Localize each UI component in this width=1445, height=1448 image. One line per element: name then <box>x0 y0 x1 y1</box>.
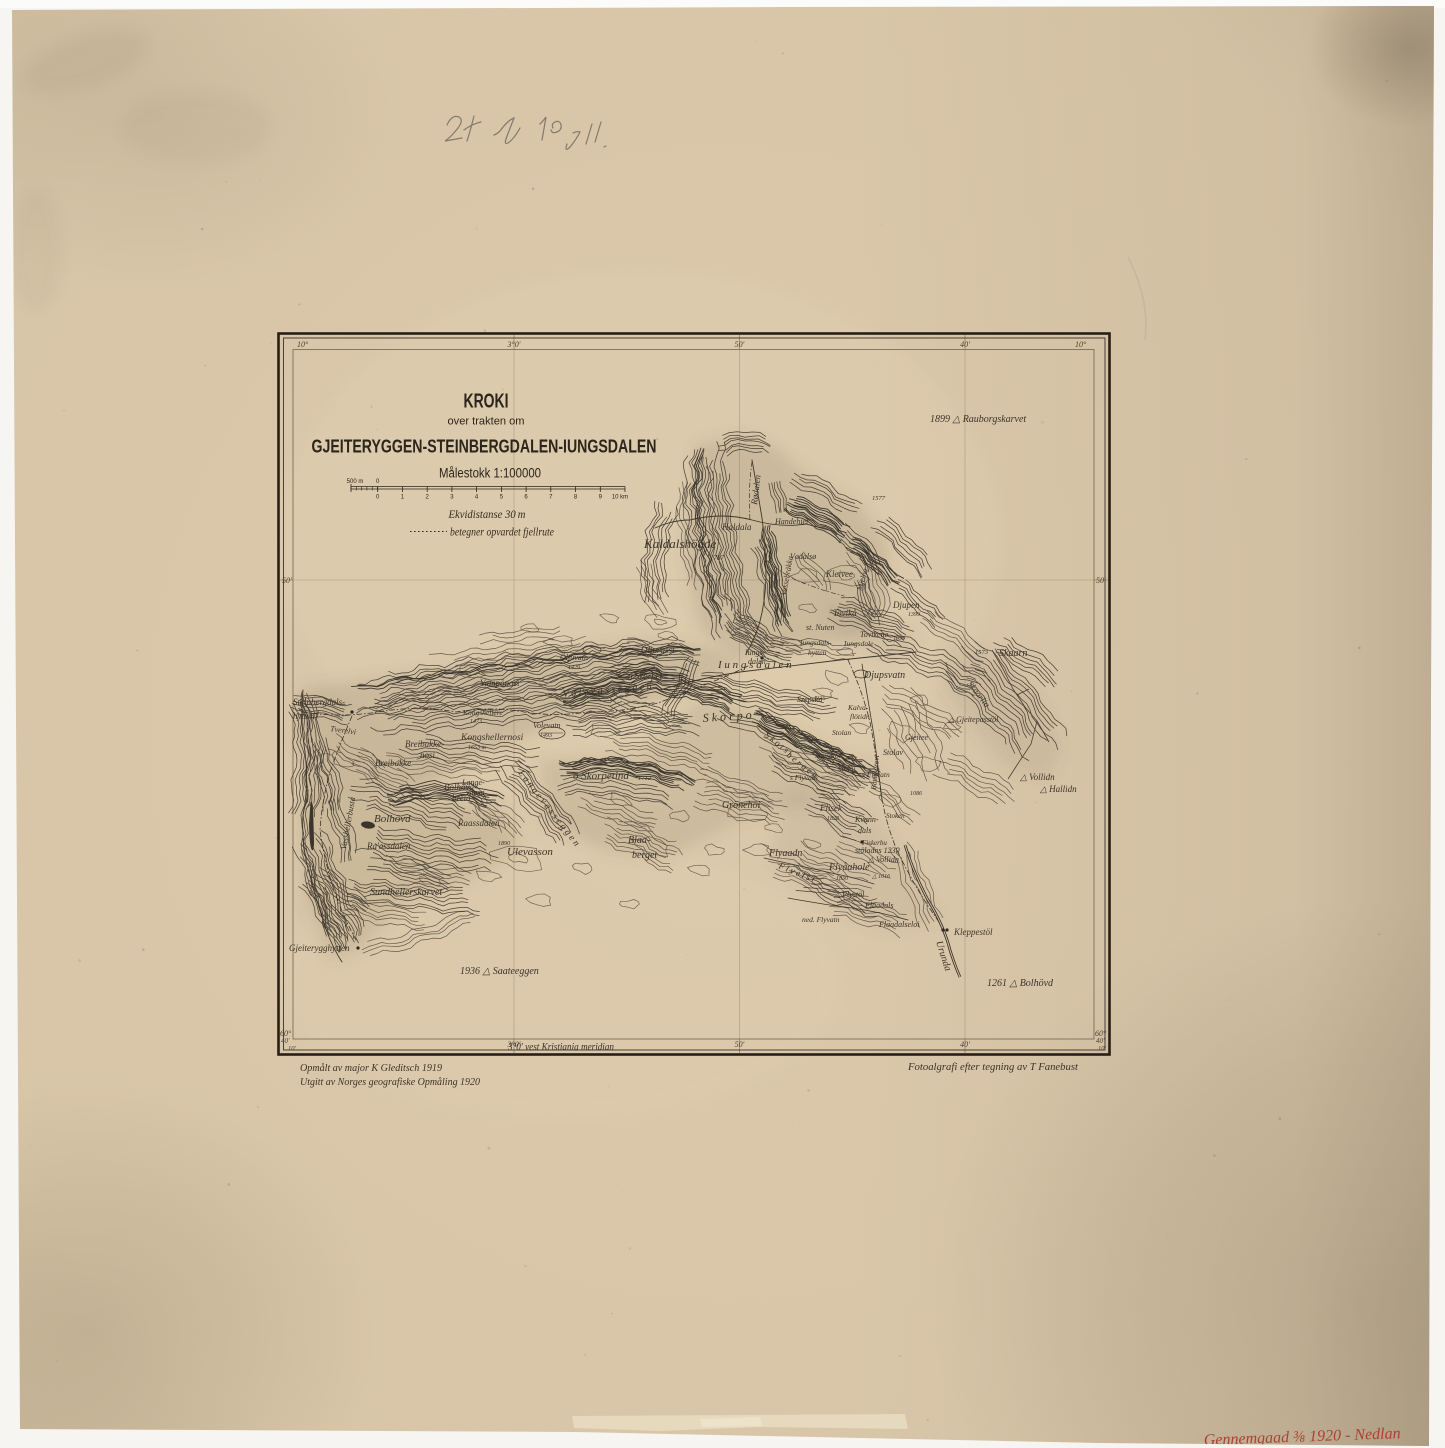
svg-text:Kongshellere: Kongshellere <box>462 708 503 717</box>
svg-text:40′: 40′ <box>960 340 970 349</box>
svg-text:Ulevasson: Ulevasson <box>507 846 553 858</box>
svg-text:10°: 10° <box>297 340 309 349</box>
svg-text:Öljurassi: Öljurassi <box>641 645 675 655</box>
svg-text:1429: 1429 <box>568 664 580 671</box>
svg-text:Skaarn: Skaarn <box>999 648 1027 659</box>
svg-text:10′: 10′ <box>1098 1045 1107 1052</box>
svg-text:50′: 50′ <box>735 340 745 349</box>
svg-text:Djupen: Djupen <box>892 600 920 610</box>
svg-text:1830: 1830 <box>836 876 848 882</box>
svg-text:△ Flystöl: △ Flystöl <box>833 890 865 899</box>
svg-text:Utgitt av Norges geografiske O: Utgitt av Norges geografiske Opmåling 19… <box>300 1076 480 1088</box>
svg-text:hytten: hytten <box>293 711 315 721</box>
svg-text:10′: 10′ <box>288 1045 297 1052</box>
svg-text:Fiskerbu: Fiskerbu <box>861 839 887 847</box>
svg-text:50′: 50′ <box>1096 576 1106 585</box>
svg-text:Szepska: Szepska <box>797 695 822 704</box>
svg-text:GJEITERYGGEN-STEINBERGDALEN-IU: GJEITERYGGEN-STEINBERGDALEN-IUNGSDALEN <box>312 436 657 457</box>
svg-text:Opmålt av major K Gleditsch 19: Opmålt av major K Gleditsch 1919 <box>300 1062 442 1074</box>
svg-text:Öljuvatn: Öljuvatn <box>560 653 588 662</box>
svg-text:Bolhövd: Bolhövd <box>374 813 411 825</box>
svg-text:Flaadalseloi: Flaadalseloi <box>878 920 919 929</box>
svg-text:40′: 40′ <box>960 1040 970 1049</box>
svg-text:Bolhövd-: Bolhövd- <box>444 782 477 792</box>
svg-text:3°0′: 3°0′ <box>507 340 521 349</box>
svg-text:Iungsdals-: Iungsdals- <box>799 638 832 647</box>
svg-text:Kleivee: Kleivee <box>825 569 853 579</box>
svg-text:Djupsvatn: Djupsvatn <box>863 670 905 681</box>
svg-text:Flisek: Flisek <box>819 803 843 813</box>
svg-text:o Skorpetind: o Skorpetind <box>573 770 629 782</box>
svg-text:1899 △ Rauborgskarvet: 1899 △ Rauborgskarvet <box>930 414 1026 425</box>
svg-text:Fotoalgrafi efter tegning av T: Fotoalgrafi efter tegning av T Fanebust <box>907 1061 1079 1073</box>
svg-text:Stolåj: Stolåj <box>838 764 856 773</box>
svg-text:betegner opvardet fjellrute: betegner opvardet fjellrute <box>450 525 555 539</box>
svg-text:ned. Flyvatn: ned. Flyvatn <box>802 915 840 924</box>
svg-text:Stoken: Stoken <box>886 812 905 820</box>
svg-text:1787: 1787 <box>710 554 725 562</box>
svg-text:△ 1016: △ 1016 <box>871 874 890 880</box>
svg-text:1099: 1099 <box>893 636 905 642</box>
svg-text:△ Hallidn: △ Hallidn <box>1039 784 1077 794</box>
svg-text:Iungs-: Iungs- <box>744 648 766 657</box>
svg-text:40′: 40′ <box>1096 1037 1105 1045</box>
svg-text:Blaa-: Blaa- <box>628 835 650 846</box>
svg-text:Vampönosi: Vampönosi <box>480 678 520 688</box>
svg-text:Kongshellernosi: Kongshellernosi <box>460 733 524 743</box>
svg-text:Breibakke: Breibakke <box>375 758 411 768</box>
svg-text:Ekvidistanse 30 m: Ekvidistanse 30 m <box>448 507 526 521</box>
svg-text:1828: 1828 <box>827 816 839 822</box>
svg-text:Flyåahole: Flyåahole <box>828 862 870 873</box>
svg-text:10 km: 10 km <box>612 495 628 501</box>
svg-text:Kleppestöl: Kleppestöl <box>953 927 993 937</box>
svg-text:1653 m: 1653 m <box>468 745 487 751</box>
svg-text:1261 △ Bolhövd: 1261 △ Bolhövd <box>987 978 1054 989</box>
svg-text:10°: 10° <box>1075 340 1087 349</box>
svg-text:stöladns 1230: stöladns 1230 <box>855 846 900 855</box>
svg-text:Stolan: Stolan <box>832 728 851 737</box>
svg-text:n Skorpet: n Skorpet <box>628 671 663 681</box>
svg-text:△ Gjeitepasstöl: △ Gjeitepasstöl <box>947 715 999 724</box>
svg-text:Flyaadn: Flyaadn <box>768 848 802 859</box>
svg-text:1936 △ Saateeggen: 1936 △ Saateeggen <box>460 966 539 977</box>
svg-text:△ Vollidn: △ Vollidn <box>1019 772 1055 782</box>
svg-text:3°0′ vest Kristiania meridian: 3°0′ vest Kristiania meridian <box>507 1042 614 1053</box>
svg-text:Gjeitee: Gjeitee <box>905 733 929 742</box>
svg-text:flötidn: flötidn <box>850 712 870 721</box>
svg-text:Kvann-: Kvann- <box>854 815 879 824</box>
svg-text:Haldala: Haldala <box>721 522 752 532</box>
svg-text:1712: 1712 <box>638 775 652 782</box>
svg-text:dals: dals <box>858 826 871 835</box>
svg-text:1577: 1577 <box>872 495 886 502</box>
svg-text:Steinbergdals-: Steinbergdals- <box>293 697 345 707</box>
svg-text:Kaldalshögde: Kaldalshögde <box>643 536 716 551</box>
svg-text:Flaadals: Flaadals <box>864 901 893 910</box>
svg-text:Grönehoi: Grönehoi <box>722 800 761 811</box>
svg-text:Gjeiterygghytten: Gjeiterygghytten <box>289 943 350 953</box>
svg-text:Kalva-: Kalva- <box>847 703 869 712</box>
svg-text:KROKI: KROKI <box>464 391 509 413</box>
svg-text:Sundhellerskarvet: Sundhellerskarvet <box>370 887 442 898</box>
svg-text:1473: 1473 <box>470 718 482 725</box>
svg-text:Ra'assdalen: Ra'assdalen <box>366 841 411 851</box>
svg-text:s Flyvatn: s Flyvatn <box>790 773 818 782</box>
svg-text:Handehiet: Handehiet <box>774 517 809 526</box>
svg-text:50′: 50′ <box>735 1040 745 1049</box>
svg-text:berget: berget <box>632 850 657 861</box>
svg-text:1573: 1573 <box>975 649 989 656</box>
svg-text:nosi: nosi <box>420 750 436 760</box>
svg-text:Volevatn: Volevatn <box>533 721 561 730</box>
svg-text:Raassdalen: Raassdalen <box>457 818 500 828</box>
svg-text:breia: breia <box>452 793 471 803</box>
svg-text:over trakten om: over trakten om <box>448 416 525 428</box>
svg-text:Tovikene: Tovikene <box>860 630 889 639</box>
svg-text:Steinstöl: Steinstöl <box>815 751 841 760</box>
svg-text:1399: 1399 <box>908 612 920 618</box>
svg-text:500 m: 500 m <box>347 479 364 485</box>
svg-text:Stolav: Stolav <box>883 748 903 757</box>
svg-text:1086: 1086 <box>910 791 922 797</box>
svg-text:Breibakke-: Breibakke- <box>405 739 444 749</box>
svg-text:△ Vollidn: △ Vollidn <box>867 855 899 864</box>
svg-text:1493: 1493 <box>540 732 552 739</box>
svg-text:40′: 40′ <box>281 1037 290 1045</box>
svg-text:hytten: hytten <box>808 648 827 657</box>
svg-text:Målestokk 1:100000: Målestokk 1:100000 <box>439 466 541 481</box>
svg-text:50′: 50′ <box>282 576 292 585</box>
svg-text:1890: 1890 <box>498 841 510 847</box>
svg-text:st. Nuten: st. Nuten <box>806 623 834 632</box>
svg-text:Iungsdale: Iungsdale <box>843 639 874 648</box>
svg-text:Tovikå: Tovikå <box>833 608 857 618</box>
